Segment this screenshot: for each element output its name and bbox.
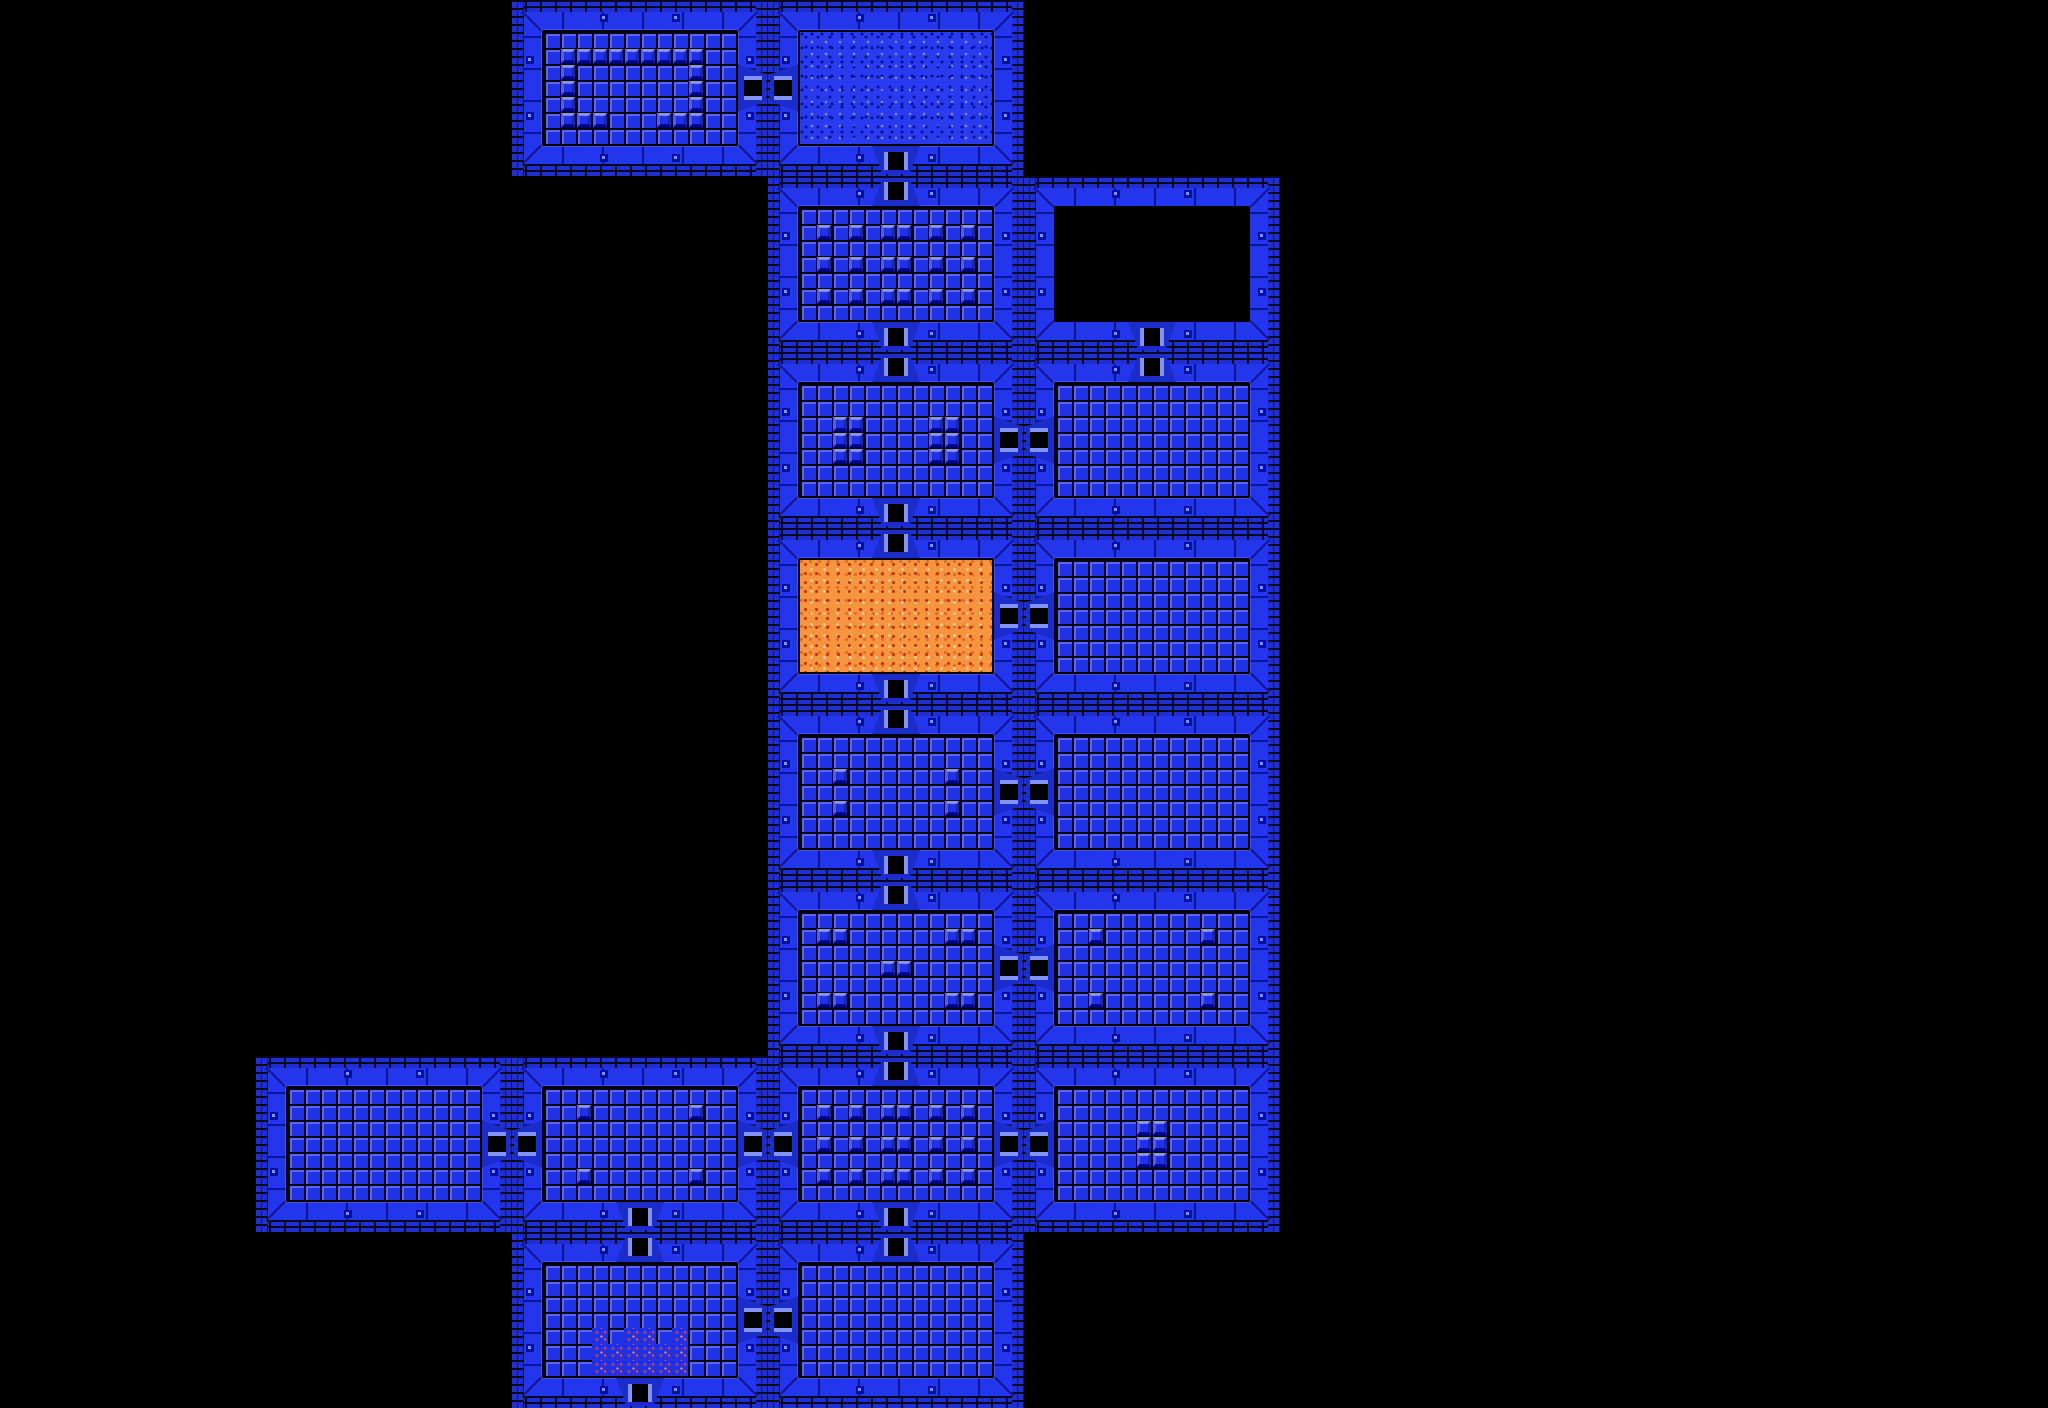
room-floor-tiles — [1054, 558, 1250, 674]
wall-face-s — [524, 146, 756, 164]
floor-block — [960, 288, 976, 304]
wall-hook-icon — [1258, 288, 1266, 296]
wall-hook-icon — [1112, 542, 1120, 550]
wall-hook-icon — [1002, 584, 1010, 592]
wall-hook-icon — [600, 14, 608, 22]
entrance-sand-tile — [624, 1360, 640, 1376]
room-r2-c4[interactable] — [1024, 352, 1280, 528]
wall-hook-icon — [1038, 992, 1046, 1000]
door-s — [872, 322, 920, 350]
floor-block — [848, 224, 864, 240]
door-s — [1128, 322, 1176, 350]
floor-block — [928, 448, 944, 464]
wall-hook-icon — [928, 1034, 936, 1042]
wall-hook-icon — [928, 14, 936, 22]
door-s — [872, 674, 920, 702]
wall-hook-icon — [746, 1344, 754, 1352]
wall-hook-icon — [782, 408, 790, 416]
wall-hook-icon — [1038, 288, 1046, 296]
room-floor-sand_orange — [798, 558, 994, 674]
wall-hook-icon — [416, 1070, 424, 1078]
floor-block — [688, 112, 704, 128]
wall-brick-s — [1024, 516, 1280, 528]
floor-block — [960, 256, 976, 272]
wall-hook-icon — [856, 1246, 864, 1254]
wall-hook-icon — [1112, 366, 1120, 374]
room-r4-c4[interactable] — [1024, 704, 1280, 880]
wall-hook-icon — [928, 330, 936, 338]
door-w — [1026, 592, 1054, 640]
wall-hook-icon — [928, 190, 936, 198]
wall-hook-icon — [856, 190, 864, 198]
floor-block — [816, 1136, 832, 1152]
door-s — [872, 1202, 920, 1230]
wall-face-s — [268, 1202, 500, 1220]
wall-hook-icon — [1112, 718, 1120, 726]
wall-hook-icon — [672, 154, 680, 162]
wall-brick-e — [1268, 1056, 1280, 1232]
floor-block — [832, 416, 848, 432]
wall-brick-n — [256, 1056, 512, 1068]
wall-hook-icon — [1002, 232, 1010, 240]
floor-block — [960, 1168, 976, 1184]
floor-block — [672, 48, 688, 64]
wall-hook-icon — [782, 288, 790, 296]
wall-brick-n — [1024, 528, 1280, 540]
wall-hook-icon — [600, 1210, 608, 1218]
wall-hook-icon — [1184, 542, 1192, 550]
floor-block — [816, 992, 832, 1008]
floor-block — [1200, 992, 1216, 1008]
wall-hook-icon — [856, 1070, 864, 1078]
door-n — [872, 178, 920, 206]
floor-block — [688, 80, 704, 96]
floor-block — [848, 256, 864, 272]
floor-block — [960, 1104, 976, 1120]
floor-block — [896, 1168, 912, 1184]
wall-hook-icon — [270, 1112, 278, 1120]
wall-hook-icon — [1002, 992, 1010, 1000]
floor-block — [816, 1168, 832, 1184]
wall-brick-e — [1268, 176, 1280, 352]
wall-hook-icon — [1002, 936, 1010, 944]
wall-hook-icon — [746, 1288, 754, 1296]
wall-hook-icon — [782, 936, 790, 944]
door-s — [872, 146, 920, 174]
wall-brick-n — [1024, 704, 1280, 716]
floor-block — [640, 48, 656, 64]
wall-hook-icon — [526, 56, 534, 64]
wall-hook-icon — [1184, 894, 1192, 902]
wall-hook-icon — [1112, 894, 1120, 902]
floor-block — [832, 928, 848, 944]
wall-hook-icon — [1112, 506, 1120, 514]
door-n — [872, 1058, 920, 1086]
room-floor-tiles — [1054, 910, 1250, 1026]
wall-hook-icon — [782, 464, 790, 472]
floor-block — [688, 48, 704, 64]
door-e — [482, 1120, 510, 1168]
wall-hook-icon — [928, 894, 936, 902]
door-n — [872, 882, 920, 910]
wall-hook-icon — [344, 1070, 352, 1078]
room-r0-c3[interactable] — [768, 0, 1024, 176]
wall-hook-icon — [672, 1210, 680, 1218]
floor-block — [832, 768, 848, 784]
wall-brick-n — [1024, 1056, 1280, 1068]
wall-hook-icon — [928, 1246, 936, 1254]
wall-hook-icon — [928, 506, 936, 514]
wall-hook-icon — [1112, 190, 1120, 198]
wall-brick-s — [1024, 692, 1280, 704]
room-floor-sand_blue — [798, 30, 994, 146]
wall-face-s — [1036, 498, 1268, 516]
room-r7-c2[interactable] — [512, 1232, 768, 1408]
floor-block — [1136, 1120, 1152, 1136]
floor-block — [832, 432, 848, 448]
floor-block — [848, 432, 864, 448]
door-w — [1026, 944, 1054, 992]
floor-block — [928, 1136, 944, 1152]
wall-face-e — [994, 188, 1012, 340]
floor-block — [1136, 1136, 1152, 1152]
floor-block — [832, 448, 848, 464]
wall-brick-e — [1012, 1232, 1024, 1408]
wall-face-n — [1036, 1068, 1268, 1086]
wall-hook-icon — [928, 154, 936, 162]
wall-hook-icon — [856, 1034, 864, 1042]
wall-hook-icon — [928, 858, 936, 866]
wall-hook-icon — [1258, 464, 1266, 472]
wall-hook-icon — [1038, 232, 1046, 240]
wall-brick-w — [256, 1056, 268, 1232]
wall-brick-e — [1268, 880, 1280, 1056]
wall-brick-n — [768, 0, 1024, 12]
wall-hook-icon — [1258, 1168, 1266, 1176]
wall-hook-icon — [1112, 1070, 1120, 1078]
wall-hook-icon — [1184, 718, 1192, 726]
room-floor-tiles — [542, 1086, 738, 1202]
floor-block — [592, 112, 608, 128]
wall-hook-icon — [782, 1168, 790, 1176]
floor-block — [880, 960, 896, 976]
floor-block — [944, 448, 960, 464]
room-floor-tiles — [1054, 382, 1250, 498]
door-n — [872, 1234, 920, 1262]
wall-hook-icon — [1258, 408, 1266, 416]
wall-brick-w — [512, 1232, 524, 1408]
floor-block — [944, 800, 960, 816]
wall-brick-s — [768, 1396, 1024, 1408]
wall-face-n — [1036, 540, 1268, 558]
wall-hook-icon — [782, 1288, 790, 1296]
room-r6-c4[interactable] — [1024, 1056, 1280, 1232]
door-e — [994, 416, 1022, 464]
wall-hook-icon — [856, 154, 864, 162]
wall-face-e — [1250, 188, 1268, 340]
entrance-sand-tile — [640, 1344, 656, 1360]
room-r5-c3[interactable] — [768, 880, 1024, 1056]
wall-hook-icon — [1184, 190, 1192, 198]
wall-hook-icon — [1258, 936, 1266, 944]
floor-block — [1200, 928, 1216, 944]
wall-hook-icon — [1002, 1112, 1010, 1120]
door-n — [872, 354, 920, 382]
room-r7-c3[interactable] — [768, 1232, 1024, 1408]
wall-hook-icon — [928, 542, 936, 550]
wall-face-s — [1036, 1202, 1268, 1220]
wall-hook-icon — [526, 1344, 534, 1352]
room-r0-c2[interactable] — [512, 0, 768, 176]
room-r5-c4[interactable] — [1024, 880, 1280, 1056]
wall-face-s — [1036, 1026, 1268, 1044]
room-floor-tiles — [798, 1262, 994, 1378]
wall-brick-e — [1012, 176, 1024, 352]
door-n — [872, 706, 920, 734]
wall-hook-icon — [1002, 408, 1010, 416]
wall-hook-icon — [526, 112, 534, 120]
door-w — [1026, 1120, 1054, 1168]
floor-block — [944, 416, 960, 432]
floor-block — [960, 928, 976, 944]
wall-hook-icon — [856, 682, 864, 690]
floor-block — [928, 288, 944, 304]
floor-block — [896, 1136, 912, 1152]
wall-brick-e — [1012, 0, 1024, 176]
wall-hook-icon — [782, 640, 790, 648]
room-floor-tiles — [286, 1086, 482, 1202]
wall-hook-icon — [1184, 1070, 1192, 1078]
room-r3-c3[interactable] — [768, 528, 1024, 704]
wall-hook-icon — [1002, 288, 1010, 296]
floor-block — [576, 48, 592, 64]
wall-face-w — [780, 364, 798, 516]
room-floor-dark — [1054, 206, 1250, 322]
wall-face-w — [780, 188, 798, 340]
wall-hook-icon — [1038, 816, 1046, 824]
door-w — [770, 1296, 798, 1344]
floor-block — [960, 992, 976, 1008]
floor-block — [880, 256, 896, 272]
floor-block — [816, 256, 832, 272]
wall-hook-icon — [856, 330, 864, 338]
wall-hook-icon — [526, 1288, 534, 1296]
wall-hook-icon — [1002, 112, 1010, 120]
wall-hook-icon — [1038, 1112, 1046, 1120]
wall-brick-e — [1268, 704, 1280, 880]
room-r1-c3[interactable] — [768, 176, 1024, 352]
wall-hook-icon — [1002, 1344, 1010, 1352]
wall-face-w — [780, 540, 798, 692]
floor-block — [560, 80, 576, 96]
room-r6-c3[interactable] — [768, 1056, 1024, 1232]
door-n — [1128, 354, 1176, 382]
entrance-sand-tile — [624, 1328, 640, 1344]
wall-hook-icon — [1184, 1034, 1192, 1042]
wall-brick-w — [1024, 176, 1036, 352]
wall-hook-icon — [1258, 232, 1266, 240]
wall-brick-n — [512, 1056, 768, 1068]
wall-hook-icon — [928, 718, 936, 726]
wall-hook-icon — [1002, 1168, 1010, 1176]
floor-block — [928, 256, 944, 272]
wall-face-n — [780, 12, 1012, 30]
room-r3-c4[interactable] — [1024, 528, 1280, 704]
wall-face-e — [1250, 364, 1268, 516]
wall-hook-icon — [600, 154, 608, 162]
wall-hook-icon — [1184, 682, 1192, 690]
wall-hook-icon — [1002, 56, 1010, 64]
wall-hook-icon — [672, 14, 680, 22]
door-s — [616, 1378, 664, 1406]
floor-block — [1088, 928, 1104, 944]
wall-hook-icon — [1002, 640, 1010, 648]
wall-face-e — [994, 1244, 1012, 1396]
door-e — [994, 768, 1022, 816]
entrance-sand-tile — [592, 1360, 608, 1376]
wall-hook-icon — [1112, 1210, 1120, 1218]
wall-hook-icon — [1258, 760, 1266, 768]
door-e — [994, 1120, 1022, 1168]
room-r6-c1[interactable] — [256, 1056, 512, 1232]
wall-brick-e — [1268, 528, 1280, 704]
wall-hook-icon — [782, 760, 790, 768]
wall-hook-icon — [1112, 682, 1120, 690]
wall-hook-icon — [1258, 992, 1266, 1000]
wall-hook-icon — [1258, 584, 1266, 592]
floor-block — [928, 1168, 944, 1184]
floor-block — [848, 1168, 864, 1184]
wall-hook-icon — [1112, 858, 1120, 866]
wall-hook-icon — [782, 584, 790, 592]
room-r1-c4[interactable] — [1024, 176, 1280, 352]
wall-brick-n — [512, 0, 768, 12]
wall-hook-icon — [1112, 330, 1120, 338]
wall-hook-icon — [1038, 408, 1046, 416]
wall-hook-icon — [928, 682, 936, 690]
room-r6-c2[interactable] — [512, 1056, 768, 1232]
room-r2-c3[interactable] — [768, 352, 1024, 528]
wall-hook-icon — [928, 1210, 936, 1218]
floor-block — [576, 1168, 592, 1184]
wall-face-w — [1036, 188, 1054, 340]
wall-brick-n — [1024, 880, 1280, 892]
room-floor-tiles — [798, 382, 994, 498]
wall-hook-icon — [928, 1070, 936, 1078]
entrance-sand-tile — [672, 1328, 688, 1344]
wall-hook-icon — [782, 816, 790, 824]
door-w — [1026, 416, 1054, 464]
floor-block — [672, 112, 688, 128]
wall-hook-icon — [1184, 366, 1192, 374]
wall-face-n — [524, 12, 756, 30]
door-e — [994, 592, 1022, 640]
door-n — [872, 530, 920, 558]
door-w — [514, 1120, 542, 1168]
wall-face-e — [1250, 1068, 1268, 1220]
entrance-sand-tile — [592, 1344, 608, 1360]
wall-hook-icon — [856, 506, 864, 514]
entrance-sand-tile — [656, 1344, 672, 1360]
floor-block — [560, 64, 576, 80]
floor-block — [848, 448, 864, 464]
door-w — [1026, 768, 1054, 816]
room-floor-tiles — [798, 734, 994, 850]
wall-hook-icon — [526, 1112, 534, 1120]
floor-block — [944, 992, 960, 1008]
wall-hook-icon — [1184, 506, 1192, 514]
wall-hook-icon — [928, 1386, 936, 1394]
entrance-sand-tile — [624, 1344, 640, 1360]
floor-block — [880, 1136, 896, 1152]
wall-face-w — [524, 1244, 542, 1396]
wall-brick-w — [768, 704, 780, 880]
wall-brick-n — [1024, 176, 1280, 188]
wall-hook-icon — [782, 992, 790, 1000]
wall-hook-icon — [1002, 1288, 1010, 1296]
wall-face-s — [1036, 850, 1268, 868]
door-n — [616, 1234, 664, 1262]
floor-block — [656, 112, 672, 128]
wall-face-n — [1036, 716, 1268, 734]
wall-face-n — [1036, 188, 1268, 206]
door-w — [770, 64, 798, 112]
wall-hook-icon — [1258, 640, 1266, 648]
wall-face-e — [1250, 540, 1268, 692]
wall-brick-w — [768, 176, 780, 352]
floor-block — [1136, 1152, 1152, 1168]
wall-brick-s — [1024, 868, 1280, 880]
floor-block — [928, 416, 944, 432]
wall-brick-s — [256, 1220, 512, 1232]
wall-hook-icon — [1184, 1210, 1192, 1218]
wall-hook-icon — [1184, 858, 1192, 866]
wall-hook-icon — [856, 542, 864, 550]
wall-hook-icon — [856, 858, 864, 866]
wall-face-n — [1036, 892, 1268, 910]
wall-brick-w — [768, 352, 780, 528]
door-s — [616, 1202, 664, 1230]
wall-hook-icon — [672, 1386, 680, 1394]
floor-block — [1088, 992, 1104, 1008]
wall-hook-icon — [782, 1112, 790, 1120]
wall-hook-icon — [600, 1246, 608, 1254]
floor-block — [576, 1104, 592, 1120]
floor-block — [816, 1104, 832, 1120]
floor-block — [944, 768, 960, 784]
entrance-sand-tile — [608, 1360, 624, 1376]
wall-hook-icon — [782, 232, 790, 240]
room-r4-c3[interactable] — [768, 704, 1024, 880]
wall-hook-icon — [782, 112, 790, 120]
wall-hook-icon — [856, 894, 864, 902]
wall-hook-icon — [928, 366, 936, 374]
wall-hook-icon — [782, 1344, 790, 1352]
floor-block — [880, 224, 896, 240]
door-e — [738, 64, 766, 112]
wall-hook-icon — [856, 14, 864, 22]
wall-hook-icon — [1184, 330, 1192, 338]
wall-hook-icon — [746, 1112, 754, 1120]
wall-brick-s — [1024, 1044, 1280, 1056]
dungeon-map-canvas[interactable] — [0, 0, 2048, 1408]
entrance-sand-tile — [656, 1360, 672, 1376]
door-e — [994, 944, 1022, 992]
floor-block — [560, 112, 576, 128]
wall-brick-w — [768, 880, 780, 1056]
floor-block — [928, 432, 944, 448]
floor-block — [896, 256, 912, 272]
